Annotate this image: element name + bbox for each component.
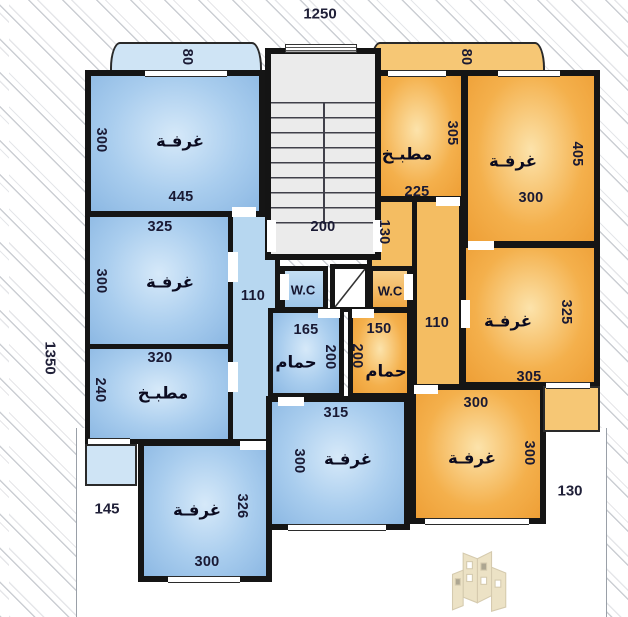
shaft-diagonal bbox=[335, 269, 365, 307]
blue-kitchen-w: 320 bbox=[147, 350, 172, 366]
orange-bedroom-bottom-label: غرفـة bbox=[448, 449, 496, 468]
orange-side-balcony bbox=[543, 386, 600, 432]
blue-bath-w: 165 bbox=[293, 322, 318, 338]
door-opening bbox=[240, 441, 266, 450]
blue-bath-label: حمام bbox=[275, 353, 316, 372]
door-opening bbox=[228, 252, 238, 282]
window bbox=[498, 70, 560, 77]
door-opening bbox=[318, 309, 340, 318]
blue-bedroom-mid-label: غرفـة bbox=[146, 273, 194, 292]
door-opening bbox=[278, 397, 304, 406]
door-opening bbox=[228, 362, 238, 392]
orange-kitchen-w: 225 bbox=[404, 184, 429, 200]
stairs-dim: 200 bbox=[310, 219, 335, 235]
site-depth-dim: 1350 bbox=[42, 341, 59, 374]
plot-boundary-left bbox=[76, 428, 77, 617]
orange-corridor-dim: 110 bbox=[425, 315, 449, 331]
blue-bedroom-mid-w: 325 bbox=[147, 219, 172, 235]
blue-rear-balcony bbox=[85, 444, 137, 486]
blue-bedroom-bl-label: غرفـة bbox=[173, 501, 221, 520]
window bbox=[425, 518, 529, 525]
blue-bedroom-top-h: 300 bbox=[93, 127, 109, 152]
orange-wc-label: W.C bbox=[378, 284, 403, 299]
door-opening bbox=[461, 300, 470, 328]
blue-balcony-dim: 80 bbox=[179, 49, 195, 66]
floor-plan: 1250 1350 145 130 200 80 غرفـة 300 445 3… bbox=[0, 0, 628, 617]
orange-kitchen-h: 305 bbox=[444, 120, 460, 145]
door-opening bbox=[352, 309, 374, 318]
yard-left-dim: 145 bbox=[94, 501, 119, 518]
orange-corridor bbox=[412, 196, 464, 398]
orange-bedroom-top-label: غرفـة bbox=[489, 152, 537, 171]
blue-bedroom-bl-h: 326 bbox=[234, 493, 250, 518]
blue-bath-h: 200 bbox=[322, 344, 338, 369]
orange-bedroom-mid-label: غرفـة bbox=[484, 312, 532, 331]
orange-bedroom-bottom-w: 300 bbox=[463, 395, 488, 411]
orange-kitchen-label: مطبـخ bbox=[382, 145, 433, 164]
window bbox=[145, 70, 227, 77]
orange-bedroom-top-h: 405 bbox=[569, 141, 585, 166]
builder-logo-watermark bbox=[418, 546, 558, 617]
blue-bedroom-bl-w: 300 bbox=[194, 554, 219, 570]
blue-bedroom-mid-h: 300 bbox=[93, 268, 109, 293]
site-width-dim: 1250 bbox=[303, 6, 336, 23]
orange-bedroom-top-w: 300 bbox=[518, 190, 543, 206]
blue-bedroom-bm-h: 300 bbox=[291, 448, 307, 473]
orange-bedroom-mid-h: 325 bbox=[558, 299, 574, 324]
blue-kitchen-h: 240 bbox=[92, 377, 108, 402]
window bbox=[546, 382, 590, 389]
yard-right-dim: 130 bbox=[557, 483, 582, 500]
window bbox=[168, 576, 240, 583]
door-opening bbox=[280, 274, 289, 300]
stair-steps bbox=[271, 102, 375, 224]
window bbox=[288, 524, 386, 531]
door-opening bbox=[468, 241, 494, 250]
door-opening bbox=[232, 207, 256, 217]
blue-kitchen-label: مطبـخ bbox=[138, 384, 189, 403]
duct-shaft bbox=[330, 264, 370, 312]
orange-corridor-entry-dim: 130 bbox=[376, 219, 392, 244]
plot-boundary-right bbox=[606, 428, 607, 617]
door-opening bbox=[267, 220, 276, 252]
blue-bedroom-bm-w: 315 bbox=[323, 405, 348, 421]
blue-wc-label: W.C bbox=[291, 283, 316, 298]
window bbox=[388, 70, 446, 77]
blue-bedroom-bm-label: غرفـة bbox=[324, 450, 372, 469]
stair-window bbox=[285, 44, 357, 53]
orange-bath-w: 150 bbox=[366, 321, 391, 337]
blue-bedroom-top-label: غرفـة bbox=[156, 132, 204, 151]
window bbox=[88, 438, 130, 445]
blue-bedroom-top-w: 445 bbox=[168, 189, 193, 205]
orange-bath-label: حمام bbox=[365, 362, 406, 381]
orange-bath-h: 200 bbox=[349, 343, 365, 368]
door-opening bbox=[436, 197, 460, 206]
orange-balcony-dim: 80 bbox=[458, 49, 474, 66]
orange-bedroom-mid-w: 305 bbox=[516, 369, 541, 385]
orange-bedroom-bottom-h: 300 bbox=[521, 440, 537, 465]
door-opening bbox=[404, 274, 413, 300]
blue-corridor-dim: 110 bbox=[241, 288, 265, 304]
door-opening bbox=[414, 385, 438, 394]
